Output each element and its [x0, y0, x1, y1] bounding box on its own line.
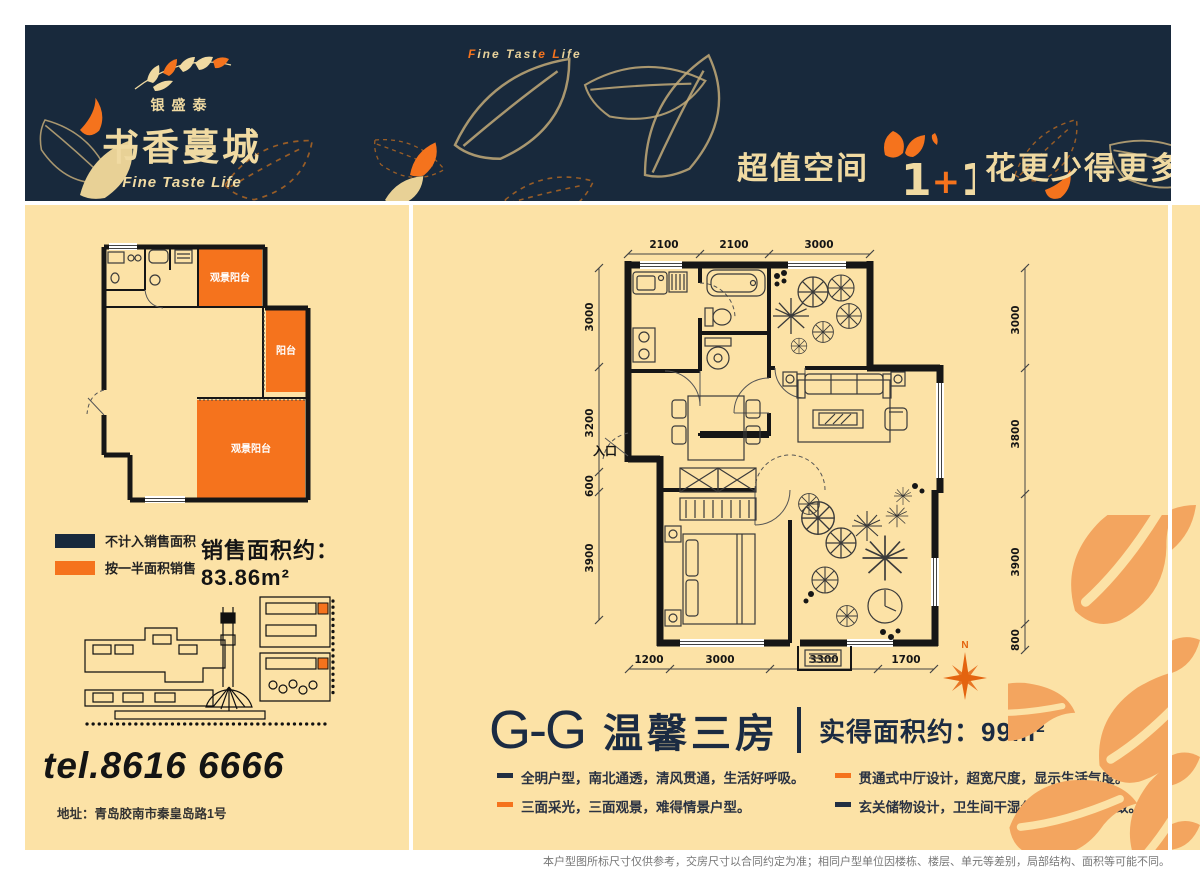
garden-room-trees — [773, 270, 861, 354]
svg-text:600: 600 — [585, 475, 596, 497]
svg-text:2100: 2100 — [719, 239, 748, 251]
balcony-side-label: 阳台 — [276, 344, 296, 357]
brand-name-sub: Fine Taste Life — [87, 174, 277, 191]
promo-one: 1 — [901, 155, 932, 201]
leaf-sprig-icon — [127, 51, 237, 93]
main-floorplan: 2100 2100 3000 3000 3200 600 3900 3000 3… — [585, 228, 1045, 703]
compass-n-label: N — [961, 640, 968, 651]
svg-text:3000: 3000 — [705, 654, 734, 666]
unit-name: 温馨三房 — [603, 701, 779, 759]
svg-text:3900: 3900 — [585, 543, 596, 572]
svg-text:3800: 3800 — [1010, 419, 1022, 448]
legend-row: 不计入销售面积 — [55, 531, 196, 550]
svg-text:1+1: 1+1 — [901, 155, 975, 201]
legend-row: 按一半面积销售 — [55, 558, 196, 577]
unit-code: G-G — [489, 702, 585, 758]
small-floorplan: 观景阳台 阳台 观景阳台 — [85, 240, 315, 525]
svg-text:3300: 3300 — [809, 654, 838, 666]
one-plus-one-icon: 1+1 — [879, 129, 975, 201]
brand-name-small: 银盛泰 — [87, 95, 277, 115]
feature-item: 三面采光，三面观景，难得情景户型。 — [497, 796, 805, 816]
promo-banner: 超值空间 1+1 花更少得更多 — [737, 129, 1171, 201]
promo-plus: + — [932, 162, 961, 201]
tagline-part: e — [538, 47, 552, 61]
living-furniture — [783, 372, 907, 442]
brand-logo: 银盛泰 书香蔓城 Fine Taste Life — [87, 51, 277, 191]
feature-marker — [835, 802, 851, 807]
legend: 不计入销售面积 按一半面积销售 — [55, 531, 196, 577]
feature-item: 全明户型，南北通透，清风贯通，生活好呼吸。 — [497, 767, 805, 787]
tagline-part: ine — [477, 47, 506, 61]
feature-marker — [497, 802, 513, 807]
svg-text:3000: 3000 — [585, 302, 596, 331]
tagline-part: L — [552, 47, 561, 61]
strip-leaf-ornament — [1172, 205, 1200, 850]
garden-trees — [799, 483, 925, 640]
phone-number: tel.8616 6666 — [43, 745, 284, 787]
plan-walls — [625, 261, 940, 646]
right-edge-strip — [1172, 205, 1200, 850]
balcony-bottom-label: 观景阳台 — [231, 442, 271, 455]
feature-marker — [835, 773, 851, 778]
compass-icon: N — [943, 640, 987, 700]
right-panel: 2100 2100 3000 3000 3200 600 3900 3000 3… — [413, 205, 1168, 850]
ac-platform — [798, 646, 851, 670]
title-divider — [797, 707, 801, 753]
header-tagline: Fine Taste Life — [468, 47, 582, 61]
corner-leaf-ornament — [1008, 515, 1168, 850]
svg-text:1200: 1200 — [634, 654, 663, 666]
tagline-part: F — [468, 47, 477, 61]
feature-text: 三面采光，三面观景，难得情景户型。 — [521, 796, 751, 816]
balcony-top-label: 观景阳台 — [210, 271, 250, 284]
tagline-part: Tast — [506, 47, 538, 61]
feature-marker — [497, 773, 513, 778]
kitchen-fixtures — [633, 272, 687, 362]
legend-swatch-dark — [55, 534, 95, 548]
svg-text:3000: 3000 — [1010, 305, 1022, 334]
dining-furniture — [672, 396, 760, 460]
entrance-label: 入口 — [593, 444, 617, 458]
header-band: 银盛泰 书香蔓城 Fine Taste Life Fine Taste Life… — [25, 25, 1171, 201]
legend-label: 不计入销售面积 — [105, 531, 196, 550]
disclaimer-text: 本户型图所标尺寸仅供参考，交房尺寸以合同约定为准；相同户型单位因楼栋、楼层、单元… — [543, 853, 1170, 869]
promo-left-text: 超值空间 — [737, 137, 869, 201]
site-plan — [75, 595, 337, 727]
flyer-page: { "colors": { "navy": "#18293C", "cream"… — [0, 0, 1200, 884]
svg-text:3200: 3200 — [585, 408, 596, 437]
legend-swatch-orange — [55, 561, 95, 575]
brand-name-main: 书香蔓城 — [87, 117, 277, 171]
promo-right-text: 花更少得更多 — [985, 137, 1171, 201]
tagline-part: ife — [562, 47, 582, 61]
legend-label: 按一半面积销售 — [105, 558, 196, 577]
bath-fixtures — [705, 270, 765, 369]
svg-text:1700: 1700 — [891, 654, 920, 666]
address: 地址：青岛胶南市秦皇岛路1号 — [57, 803, 226, 822]
sales-area-text: 销售面积约：83.86m² — [201, 533, 409, 591]
promo-one: 1 — [960, 155, 975, 201]
svg-text:2100: 2100 — [649, 239, 678, 251]
unit-title: G-G 温馨三房 实得面积约：99m² — [489, 701, 1046, 759]
feature-text: 全明户型，南北通透，清风贯通，生活好呼吸。 — [521, 767, 805, 787]
svg-text:3000: 3000 — [804, 239, 833, 251]
left-panel: 观景阳台 阳台 观景阳台 不计入销售面积 按一半面积销售 销售面积约：83.86… — [25, 205, 409, 850]
